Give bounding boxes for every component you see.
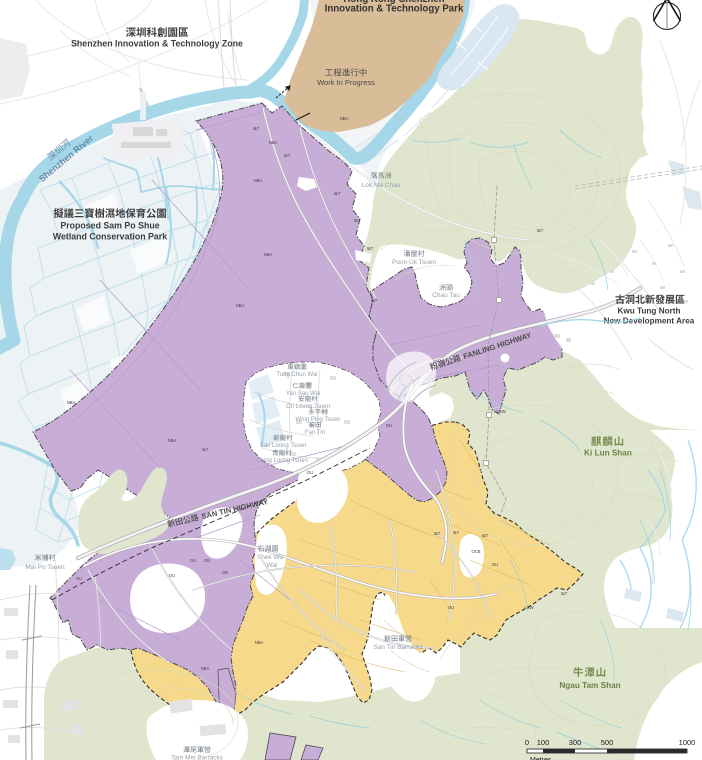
svg-text:0: 0 <box>525 738 529 747</box>
svg-text:OU: OU <box>386 423 392 428</box>
svg-text:Tung Chun Wai: Tung Chun Wai <box>276 372 317 378</box>
svg-text:NBA: NBA <box>269 140 278 145</box>
svg-text:I&T: I&T <box>482 533 489 538</box>
svg-text:San Tin Barracks: San Tin Barracks <box>373 644 423 651</box>
svg-text:Shek Wu: Shek Wu <box>257 554 284 561</box>
svg-text:1000: 1000 <box>679 738 696 747</box>
svg-text:I&T: I&T <box>371 298 378 303</box>
svg-text:Wetland Conservation Park: Wetland Conservation Park <box>53 232 167 242</box>
svg-text:Fan Tin: Fan Tin <box>305 430 325 436</box>
svg-text:OU: OU <box>307 470 313 475</box>
svg-text:NBA: NBA <box>255 640 264 645</box>
svg-text:I&T: I&T <box>434 531 441 536</box>
svg-text:300: 300 <box>569 738 582 747</box>
svg-text:I&T: I&T <box>354 218 361 223</box>
svg-text:On Loong Tsuen: On Loong Tsuen <box>286 404 330 410</box>
svg-text:I&T: I&T <box>453 530 460 535</box>
svg-text:Lok Ma Chau: Lok Ma Chau <box>362 182 401 189</box>
svg-text:NBA: NBA <box>254 178 263 183</box>
svg-text:OCB: OCB <box>471 549 480 554</box>
svg-text:Ki Lun Shan: Ki Lun Shan <box>584 449 632 458</box>
svg-text:I&T: I&T <box>202 447 209 452</box>
svg-text:Yan Sau Wai: Yan Sau Wai <box>286 391 320 397</box>
svg-text:I&T: I&T <box>253 126 260 131</box>
svg-text:NBA: NBA <box>168 438 177 443</box>
svg-text:Chau Tau: Chau Tau <box>432 292 460 299</box>
svg-text:500: 500 <box>601 738 614 747</box>
svg-text:Poon Uk Tsuen: Poon Uk Tsuen <box>392 259 436 266</box>
svg-text:GB: GB <box>222 570 228 575</box>
svg-text:Work In Progress: Work In Progress <box>317 78 375 87</box>
svg-text:LSW: LSW <box>524 605 533 610</box>
svg-text:OU: OU <box>76 576 82 581</box>
svg-text:New Development Area: New Development Area <box>604 317 695 326</box>
svg-text:Mai Po Tsuen: Mai Po Tsuen <box>25 564 65 571</box>
svg-text:Ngau Tam Shan: Ngau Tam Shan <box>559 681 620 690</box>
svg-text:I&T: I&T <box>367 246 374 251</box>
svg-text:Kwu Tung North: Kwu Tung North <box>617 307 680 316</box>
svg-text:OU: OU <box>190 558 196 563</box>
svg-text:San Loong Tsuen: San Loong Tsuen <box>260 443 307 449</box>
svg-text:Tam Mei Barracks: Tam Mei Barracks <box>171 755 224 760</box>
svg-text:OU: OU <box>448 605 454 610</box>
svg-text:NBA: NBA <box>264 252 273 257</box>
svg-text:NBA: NBA <box>340 116 349 121</box>
svg-text:I&T: I&T <box>561 591 568 596</box>
svg-text:I&T: I&T <box>284 153 291 158</box>
svg-text:Ching Loong Tsuen: Ching Loong Tsuen <box>256 458 308 464</box>
svg-text:GB: GB <box>204 558 210 563</box>
svg-text:NBA: NBA <box>201 666 210 671</box>
svg-text:Shenzhen Innovation & Technolo: Shenzhen Innovation & Technology Zone <box>71 39 243 49</box>
svg-text:NBA: NBA <box>236 303 245 308</box>
svg-text:I&T: I&T <box>334 191 341 196</box>
svg-text:NBA: NBA <box>67 400 76 405</box>
svg-text:Innovation & Technology Park: Innovation & Technology Park <box>325 4 464 15</box>
svg-text:OU: OU <box>492 562 498 567</box>
svg-text:Proposed Sam Po Shue: Proposed Sam Po Shue <box>60 221 159 231</box>
svg-text:Wai: Wai <box>267 562 278 569</box>
svg-text:I&T: I&T <box>537 228 544 233</box>
svg-text:LSW: LSW <box>496 409 505 414</box>
svg-text:OU: OU <box>169 573 175 578</box>
svg-text:100: 100 <box>537 738 550 747</box>
